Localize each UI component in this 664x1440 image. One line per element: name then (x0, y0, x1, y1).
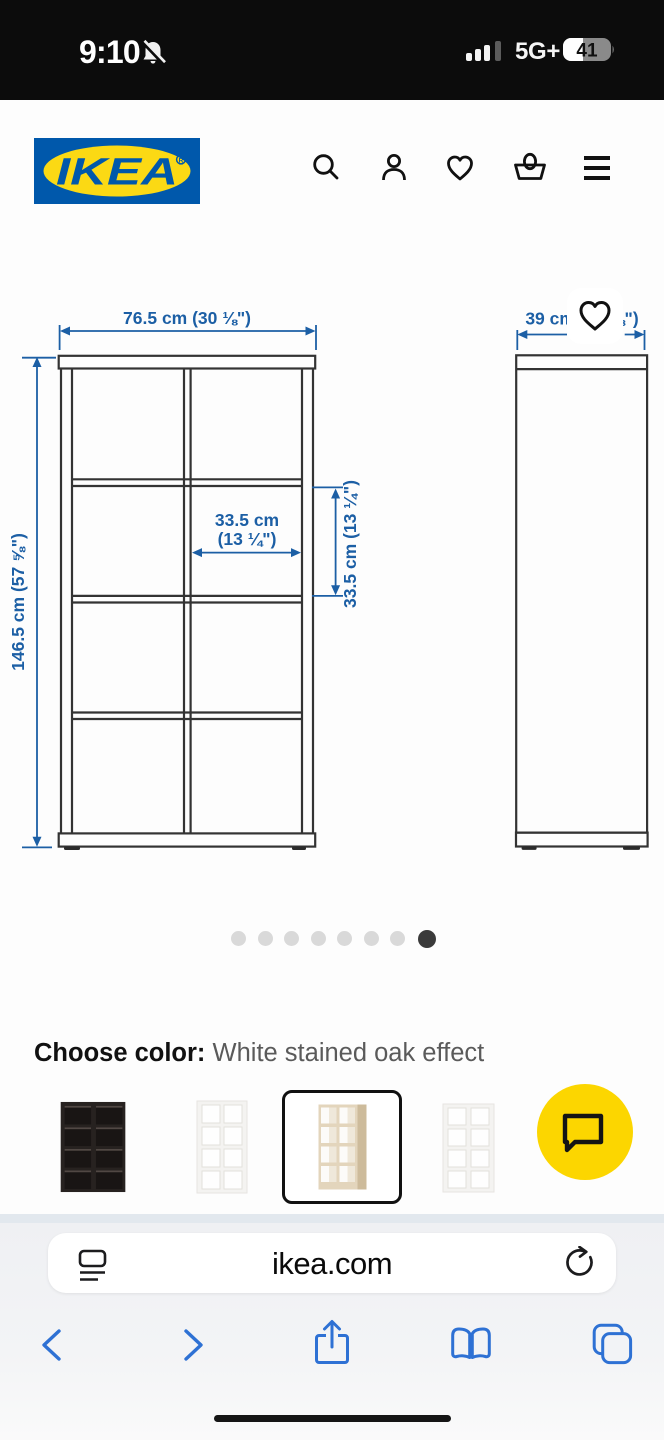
svg-text:R: R (179, 158, 184, 165)
svg-text:(13 ¼"): (13 ¼") (218, 529, 277, 549)
svg-text:146.5 cm (57 ⅝"): 146.5 cm (57 ⅝") (8, 533, 28, 671)
svg-text:33.5 cm: 33.5 cm (215, 510, 279, 530)
svg-text:33.5 cm (13 ¼"): 33.5 cm (13 ¼") (340, 480, 360, 608)
svg-text:41: 41 (576, 41, 598, 62)
svg-text:IKEA: IKEA (56, 152, 178, 194)
svg-text:76.5 cm (30 ⅛"): 76.5 cm (30 ⅛") (123, 308, 251, 328)
